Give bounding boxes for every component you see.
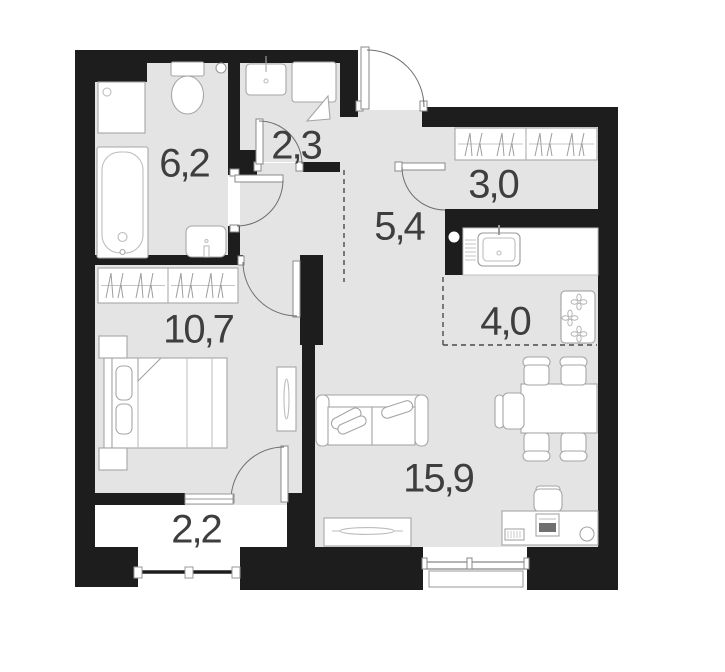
double-bed-icon <box>104 358 227 448</box>
bathtub-icon <box>97 147 148 258</box>
tv-stand-icon <box>324 518 411 546</box>
riser-dot-icon <box>449 232 460 243</box>
mirror-icon <box>277 367 296 431</box>
window-sill <box>429 571 523 587</box>
sofa-icon <box>316 395 428 446</box>
stool-icon <box>580 527 594 541</box>
area-label-wardrobe-room: 3,0 <box>468 163 518 208</box>
tv-icon <box>340 528 394 535</box>
nightstand-icon <box>99 336 127 358</box>
area-label-kitchen-zone: 4,0 <box>480 300 530 345</box>
area-label-hallway: 5,4 <box>374 205 424 250</box>
nightstand-icon <box>99 448 127 470</box>
floor-drain-icon <box>216 63 226 73</box>
floor-plan: 6,2 2,3 5,4 3,0 10,7 4,0 15,9 2,2 <box>0 0 725 672</box>
washing-machine-icon <box>98 82 145 133</box>
area-label-shower-room: 2,3 <box>271 124 321 169</box>
area-label-bedroom: 10,7 <box>163 308 233 353</box>
desk-chair-icon <box>534 489 562 512</box>
dining-table-icon <box>521 384 597 433</box>
entrance-door-icon <box>356 47 427 111</box>
closet-rail-icon <box>455 128 597 160</box>
bedroom-window-icon <box>185 494 233 504</box>
living-room-window-icon <box>422 547 529 587</box>
toilet-icon <box>171 62 204 114</box>
bathroom-sink-icon <box>186 226 226 257</box>
stove-icon <box>561 291 595 343</box>
area-label-balcony: 2,2 <box>171 508 221 553</box>
floor-plan-drawing <box>0 0 725 672</box>
area-label-bathroom: 6,2 <box>159 142 209 187</box>
bedroom-closet-rail-icon <box>98 268 238 303</box>
area-label-living-room: 15,9 <box>403 457 473 502</box>
